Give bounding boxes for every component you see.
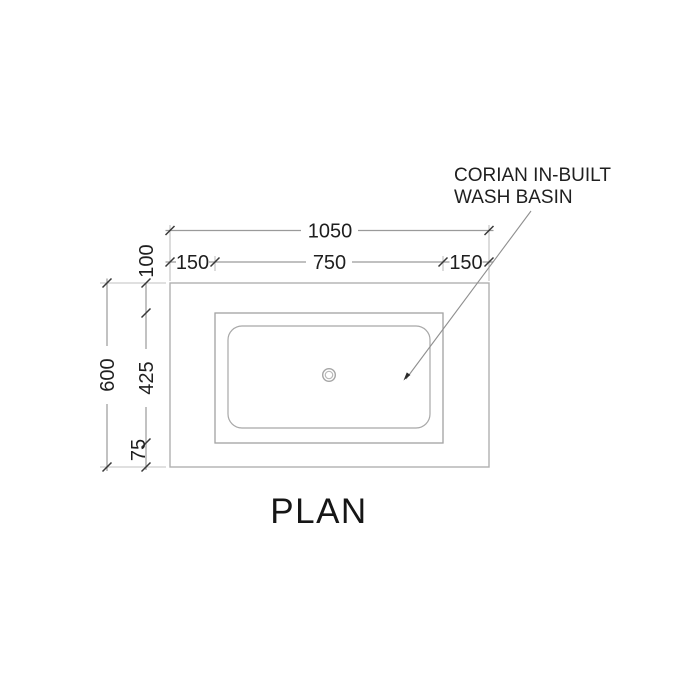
tick-marks — [103, 226, 494, 472]
dim-text-top-total: 1050 — [308, 221, 353, 243]
dim-text-top-middle: 750 — [313, 252, 346, 274]
counter-top-outline — [170, 283, 489, 467]
drawing-title: PLAN — [270, 492, 367, 531]
annotation-label-line2: WASH BASIN — [454, 187, 573, 208]
dim-text-top-left: 150 — [176, 252, 209, 274]
basin-bowl-outline — [228, 326, 430, 428]
drawing-canvas: 1050 150 750 150 600 100 425 75 CORIAN I… — [0, 0, 700, 700]
leader-line — [406, 211, 531, 379]
drain-icon — [323, 369, 336, 382]
dim-text-side-top: 100 — [136, 244, 158, 277]
dim-text-side-bottom: 75 — [128, 439, 150, 461]
dim-text-side-middle: 425 — [136, 361, 158, 394]
drain-inner-ring-icon — [325, 371, 332, 378]
basin-cutout-outline — [215, 313, 443, 443]
plan-drawing: 1050 150 750 150 600 100 425 75 CORIAN I… — [0, 0, 700, 700]
dim-text-top-right: 150 — [449, 252, 482, 274]
annotation-label-line1: CORIAN IN-BUILT — [454, 165, 611, 186]
dim-text-side-total: 600 — [97, 358, 119, 391]
